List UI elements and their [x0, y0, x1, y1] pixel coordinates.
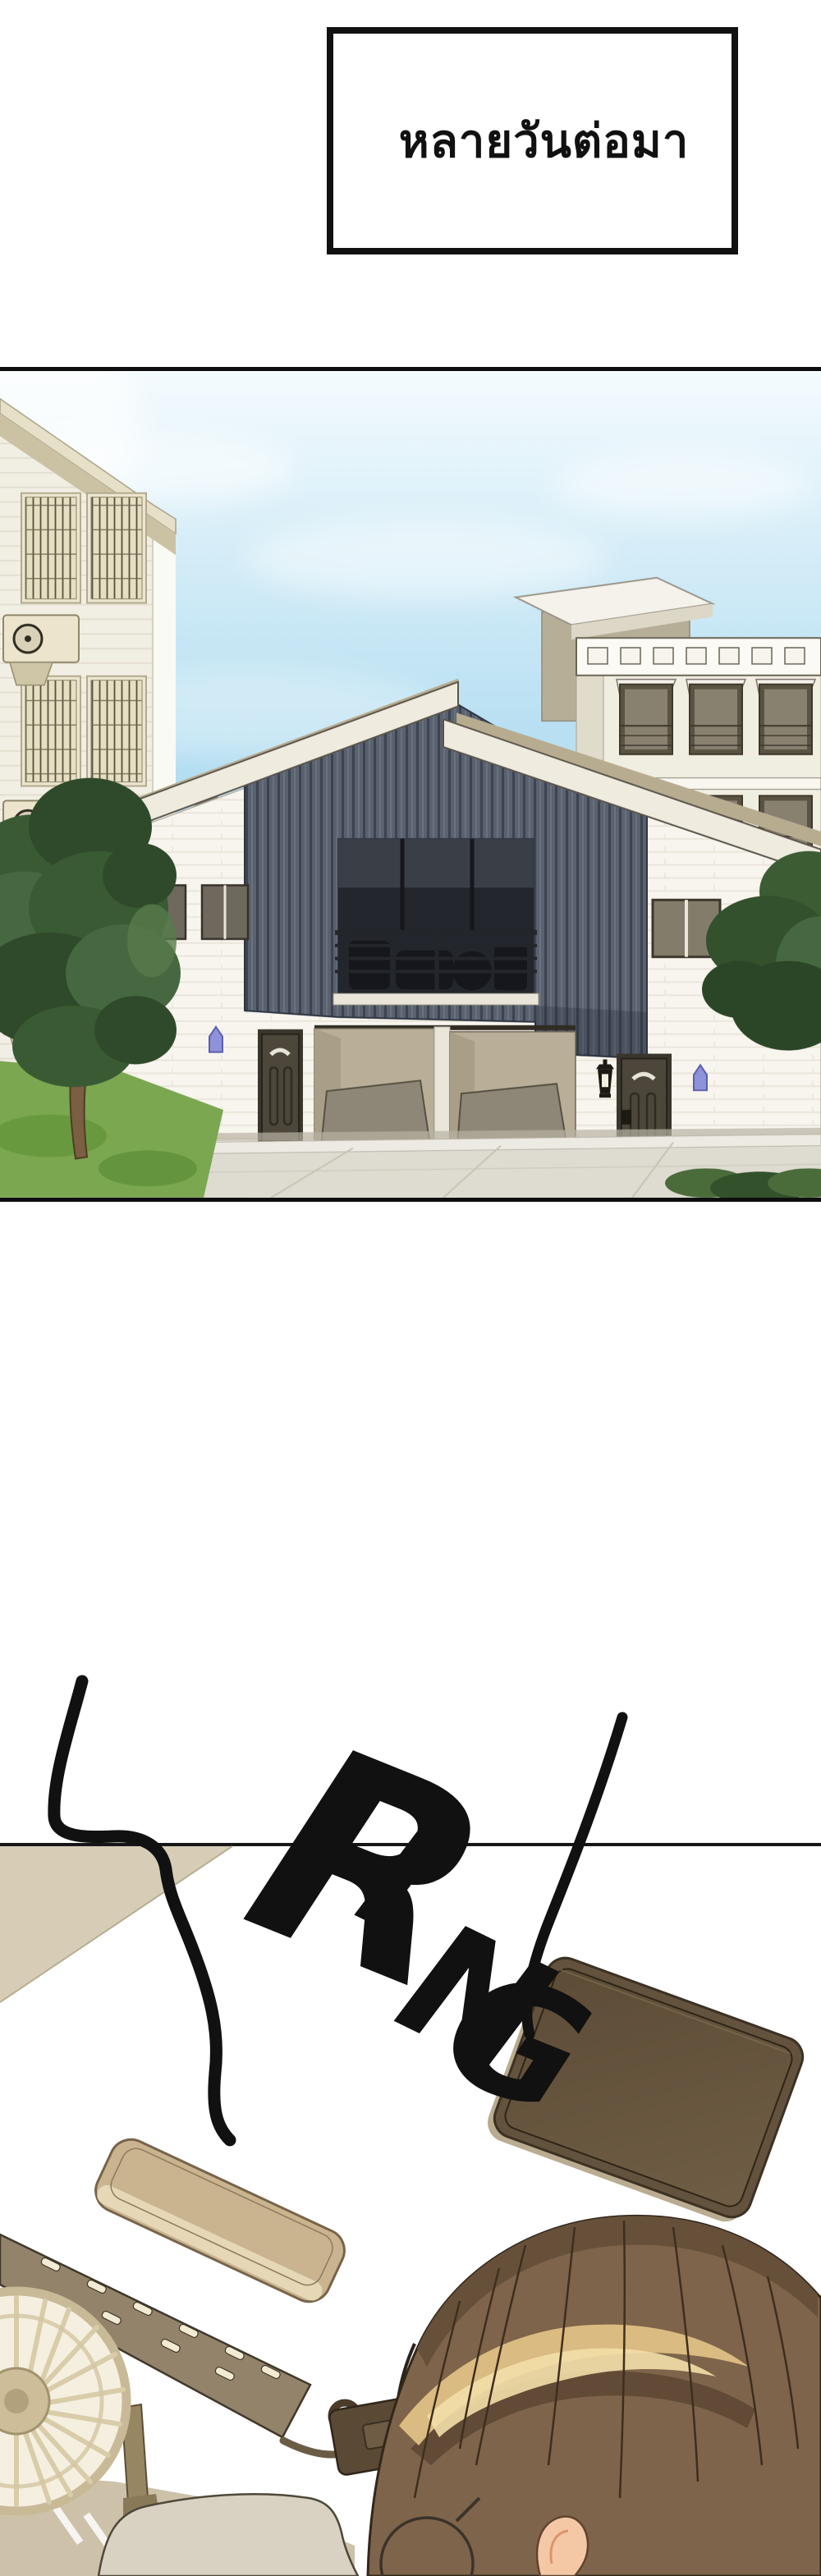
doorbell-intercom	[621, 1110, 631, 1125]
vibration-squiggle-left	[54, 1681, 230, 2140]
parapet-windows-row	[588, 648, 805, 664]
balcony	[333, 839, 539, 1005]
building-panel	[0, 367, 821, 1202]
caption-box: หลายวันต่อมา	[327, 27, 738, 254]
building-scene-illustration	[0, 371, 821, 1198]
comic-page: หลายวันต่อมา	[0, 0, 821, 2576]
caption-text: หลายวันต่อมา	[376, 104, 690, 177]
sfx-ring: R I N G	[25, 1654, 632, 2188]
girl-head	[368, 2216, 821, 2576]
